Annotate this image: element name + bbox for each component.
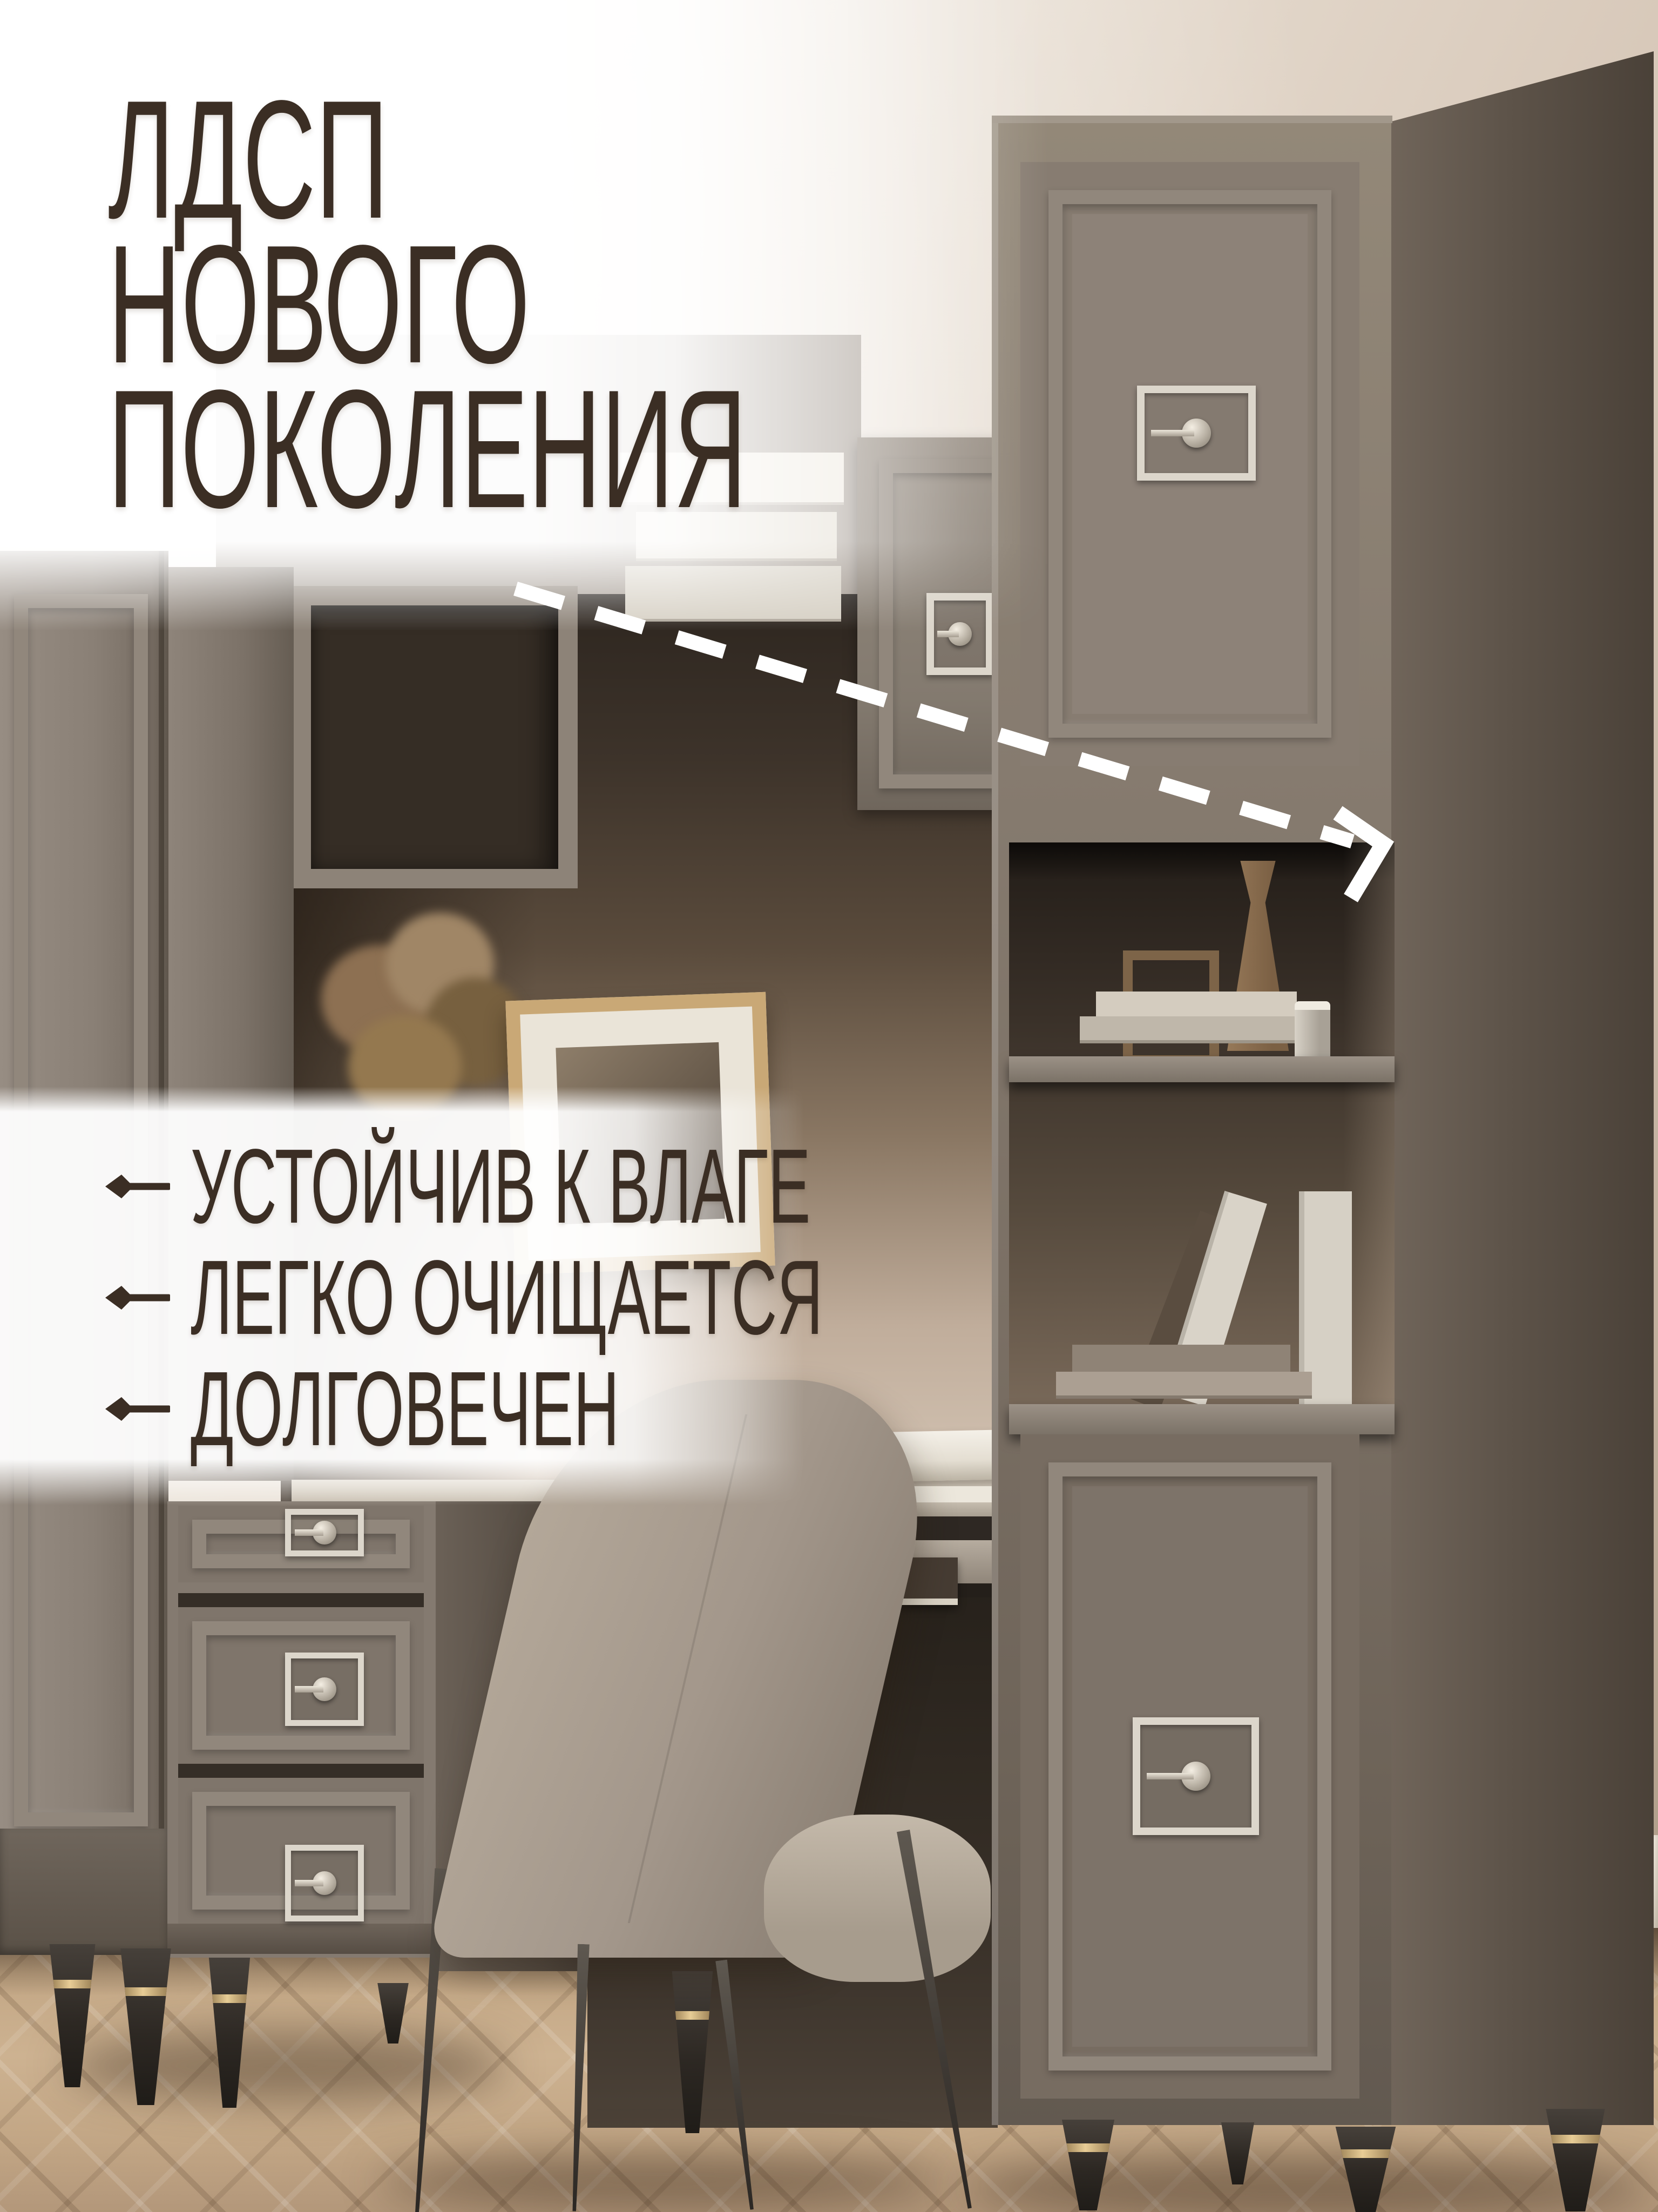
shelf-book bbox=[1096, 992, 1297, 1020]
page-title: ЛДСП НОВОГО ПОКОЛЕНИЯ bbox=[108, 87, 1173, 522]
drawer-handle bbox=[285, 1653, 364, 1726]
drawer-gap bbox=[178, 1764, 424, 1778]
shelf-board bbox=[1009, 1056, 1395, 1082]
drawer-pedestal bbox=[167, 1501, 436, 1958]
shelf-book bbox=[1080, 1016, 1313, 1043]
product-infographic: ЛДСП НОВОГО ПОКОЛЕНИЯ УСТОЙЧИВ К ВЛАГЕ Л… bbox=[0, 0, 1658, 2212]
feature-item: ЛЕГКО ОЧИЩАЕТСЯ bbox=[105, 1242, 1244, 1353]
left-arrow-icon bbox=[105, 1284, 170, 1311]
handle-stem bbox=[295, 1529, 323, 1536]
feature-label: ЛЕГКО ОЧИЩАЕТСЯ bbox=[191, 1242, 823, 1353]
cabinet-handle bbox=[1133, 1717, 1259, 1835]
leg-ring bbox=[1542, 2135, 1608, 2143]
left-arrow-icon bbox=[105, 1173, 170, 1200]
leg-ring bbox=[207, 1994, 253, 2003]
left-arrow-icon bbox=[105, 1395, 170, 1422]
metal-cup bbox=[1295, 1001, 1330, 1065]
feature-item: УСТОЙЧИВ К ВЛАГЕ bbox=[105, 1131, 1244, 1242]
feature-item: ДОЛГОВЕЧЕН bbox=[105, 1353, 1244, 1465]
leg-ring bbox=[670, 2011, 715, 2020]
handle-stem bbox=[295, 1880, 323, 1886]
tall-cabinet-side bbox=[1391, 51, 1654, 2125]
leg-ring bbox=[118, 1987, 174, 1996]
title-line-3: ПОКОЛЕНИЯ bbox=[108, 377, 747, 522]
features-list: УСТОЙЧИВ К ВЛАГЕ ЛЕГКО ОЧИЩАЕТСЯ ДОЛГОВЕ… bbox=[105, 1131, 1244, 1465]
drawer-handle bbox=[285, 1845, 364, 1921]
drawer-gap bbox=[178, 1593, 424, 1607]
floor-shadow bbox=[378, 2155, 945, 2209]
handle-stem bbox=[295, 1686, 323, 1692]
handle-stem bbox=[1147, 1773, 1194, 1779]
wardrobe-base bbox=[0, 1829, 168, 1955]
drawer-handle bbox=[285, 1509, 364, 1556]
pedestal-base bbox=[167, 1924, 436, 1954]
feature-label: ДОЛГОВЕЧЕН bbox=[191, 1353, 619, 1465]
leg-ring bbox=[47, 1980, 98, 1988]
feature-label: УСТОЙЧИВ К ВЛАГЕ bbox=[191, 1131, 810, 1242]
paper-sheet bbox=[912, 1486, 993, 1502]
chair-seat bbox=[764, 1815, 991, 1982]
